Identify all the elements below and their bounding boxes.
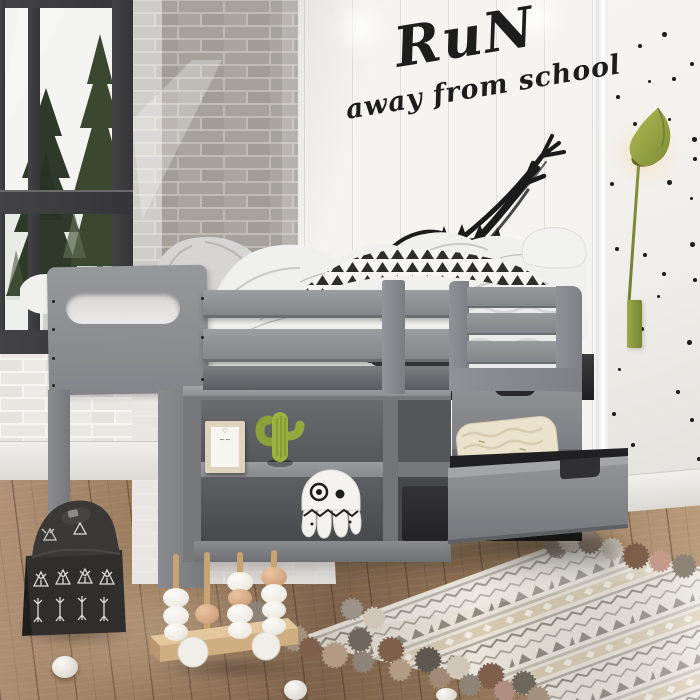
pillow: [522, 228, 586, 268]
polka-dot: [693, 278, 697, 282]
lamp-wall-mount: [627, 300, 642, 348]
kids-bedroom-photo: RuN away from school: [0, 0, 700, 700]
polka-dot: [615, 247, 619, 251]
polka-dot: [687, 340, 692, 345]
storage-basket: [18, 494, 130, 644]
screw: [52, 328, 55, 331]
polka-dot: [643, 253, 647, 257]
loose-bead: [52, 656, 78, 678]
polka-dot: [618, 368, 621, 371]
screw: [52, 384, 55, 387]
polka-dot: [693, 157, 697, 161]
screw: [201, 297, 204, 300]
polka-dot: [690, 197, 693, 200]
open-drawer: [438, 444, 638, 554]
stacking-toy: [138, 540, 318, 680]
screw: [201, 378, 204, 381]
polka-dot: [662, 272, 666, 276]
window-frame-left: [0, 0, 5, 354]
headboard: [47, 265, 209, 396]
polka-dot: [657, 295, 660, 298]
ceiling-light-glow: [330, 0, 390, 62]
footboard-slat-1: [467, 287, 557, 308]
polka-dot: [692, 137, 697, 142]
bed-side-rail: [203, 366, 451, 390]
polka-dot: [616, 95, 620, 99]
polka-dot: [690, 418, 694, 422]
polka-dot: [662, 32, 667, 37]
headboard-cutout: [66, 292, 180, 324]
polka-dot: [612, 412, 616, 416]
polka-dot: [690, 242, 695, 247]
window-mullion-horizontal: [0, 190, 133, 214]
polka-dot: [638, 44, 642, 48]
polka-dot: [672, 77, 676, 81]
screw: [52, 357, 55, 360]
footboard-slat-2: [467, 313, 557, 335]
cactus-figurine: [254, 408, 306, 468]
screw: [52, 300, 55, 303]
rail-post: [382, 280, 405, 394]
polka-dot: [690, 62, 694, 66]
guard-rail-lower: [203, 329, 461, 362]
wall-lamp: [614, 104, 678, 176]
plush-eye-right: [336, 490, 345, 499]
guard-rail-upper: [203, 290, 461, 318]
polka-dot: [667, 180, 672, 185]
screw: [201, 336, 204, 339]
polka-dot: [610, 182, 614, 186]
baseboard-left: [0, 441, 180, 480]
footboard-slat-3: [467, 341, 557, 364]
toy-wheel: [178, 637, 208, 667]
polka-dot: [676, 390, 680, 394]
loose-bead: [436, 688, 457, 700]
loose-bead: [284, 680, 307, 700]
polka-dot: [648, 80, 651, 83]
bookshelf-divider: [383, 400, 398, 541]
toy-wheel: [252, 632, 280, 660]
footboard-bottom-rail: [449, 368, 582, 391]
octopus-plush: [292, 466, 370, 544]
picture-frame-art: ♡~~: [211, 427, 239, 467]
